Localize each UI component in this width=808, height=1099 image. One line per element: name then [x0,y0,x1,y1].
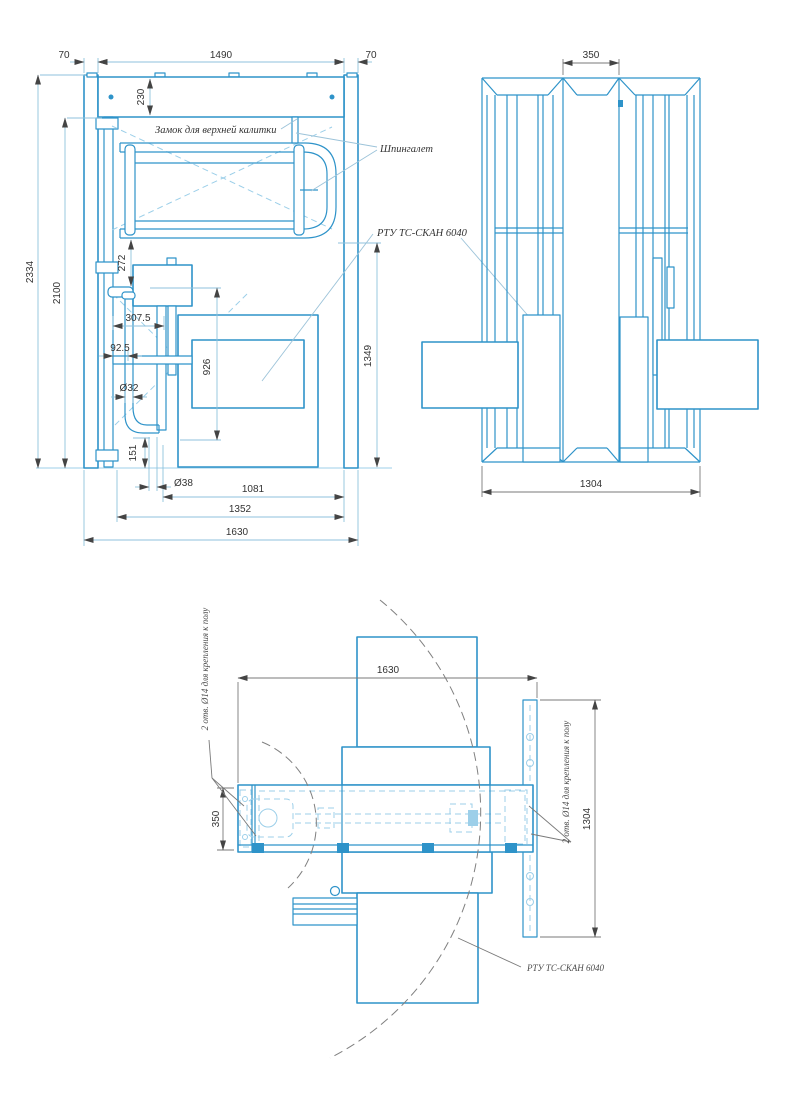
dim-overall-height: 2334 [25,260,36,283]
dim-post-diameter: Ø38 [174,478,193,489]
label-plan-scanner: РТУ ТС-СКАН 6040 [526,963,605,973]
drawing-svg: 70 1490 70 230 2334 2100 272 307.5 92.5 … [0,0,808,1099]
dim-arm-offset: 92.5 [110,343,130,354]
label-scanner: РТУ ТС-СКАН 6040 [376,228,468,239]
dim-scanner-height: 926 [202,358,213,375]
left-cabinet-side [422,342,518,408]
dim-opening-width: 1490 [210,50,233,61]
dim-passage-width: 350 [583,50,600,61]
dim-hinge-offset: 307.5 [125,313,150,324]
dim-left-post-width: 70 [58,50,70,61]
dim-plan-plate-length: 1304 [582,807,593,830]
dim-plan-housing-depth: 350 [211,810,222,827]
dim-base-height: 151 [128,444,139,461]
label-gate-lock: Замок для верхней калитки [155,125,276,136]
technical-drawing-sheet: 70 1490 70 230 2334 2100 272 307.5 92.5 … [0,0,808,1099]
beam-hole-left [109,95,114,100]
dim-overall-width: 1630 [226,527,249,538]
label-anchor-holes-right: 2 отв. Ø14 для крепления к полу [561,721,571,844]
label-anchor-holes-left: 2 отв. Ø14 для крепления к полу [200,608,210,731]
turnstile-housing-plan [238,785,533,852]
side-view: 350 1304 [422,50,758,497]
dim-beam-height: 230 [136,88,147,105]
label-latch: Шпингалет [379,144,433,155]
mechanism-box [133,265,192,306]
dim-plan-overall-width: 1630 [377,665,400,676]
front-view: 70 1490 70 230 2334 2100 272 307.5 92.5 … [25,50,543,546]
dim-arm-span: 1352 [229,504,252,515]
dim-scanner-offset: 1081 [242,484,265,495]
dim-gate-bottom-height: 1349 [363,344,374,367]
dim-gate-to-box: 272 [117,254,128,271]
scanner-column-side [523,315,560,462]
plan-reader-box [293,898,357,925]
dim-clear-height: 2100 [52,281,63,304]
plan-scanner-box [357,893,478,1003]
plan-upper-box [357,637,477,747]
dim-overall-depth: 1304 [580,479,603,490]
beam-hole-right [330,95,335,100]
dim-right-post-width: 70 [365,50,377,61]
dim-tube-diameter: Ø32 [120,383,139,394]
latch-rod [292,117,298,143]
plan-view: 1630 350 1304 2 отв. Ø14 для крепления к… [200,600,605,1058]
right-cabinet-side [657,340,758,409]
